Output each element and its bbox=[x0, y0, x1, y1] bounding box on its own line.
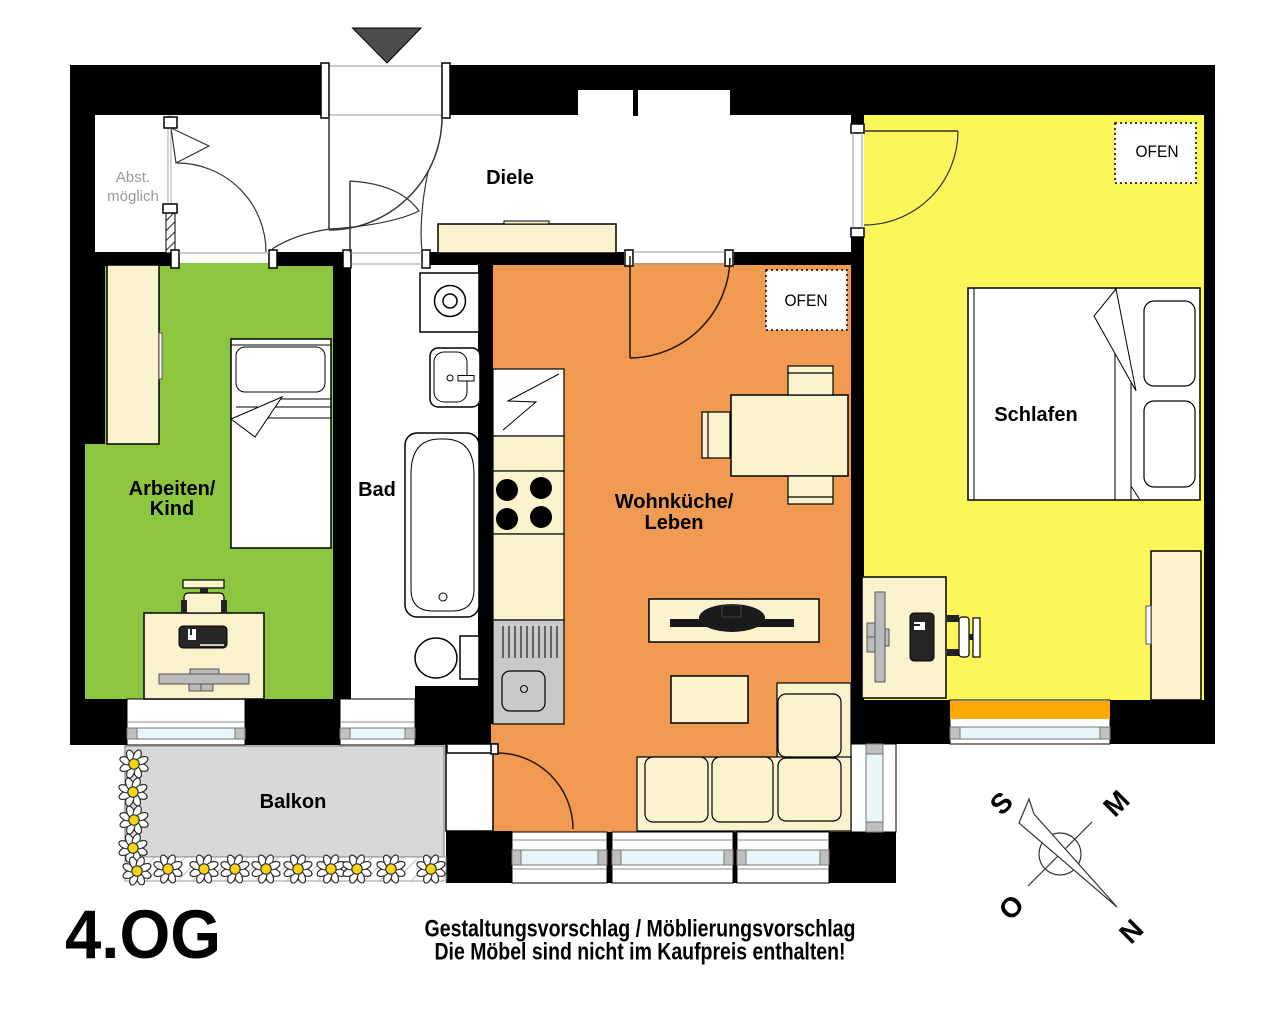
svg-text:Die Möbel sind nicht im Kaufpr: Die Möbel sind nicht im Kaufpreis enthal… bbox=[435, 939, 846, 966]
svg-text:möglich: möglich bbox=[107, 188, 159, 205]
svg-text:Diele: Diele bbox=[486, 167, 534, 189]
svg-text:Bad: Bad bbox=[358, 479, 396, 501]
svg-text:Kind: Kind bbox=[150, 498, 194, 520]
svg-text:Schlafen: Schlafen bbox=[994, 404, 1077, 426]
svg-text:4.OG: 4.OG bbox=[65, 896, 221, 973]
svg-text:Balkon: Balkon bbox=[260, 791, 327, 813]
svg-text:OFEN: OFEN bbox=[785, 291, 828, 310]
svg-text:Wohnküche/: Wohnküche/ bbox=[615, 491, 734, 513]
svg-text:Arbeiten/: Arbeiten/ bbox=[129, 478, 216, 500]
svg-text:Leben: Leben bbox=[645, 512, 704, 534]
svg-text:Abst.: Abst. bbox=[116, 169, 150, 186]
svg-text:OFEN: OFEN bbox=[1136, 142, 1179, 161]
